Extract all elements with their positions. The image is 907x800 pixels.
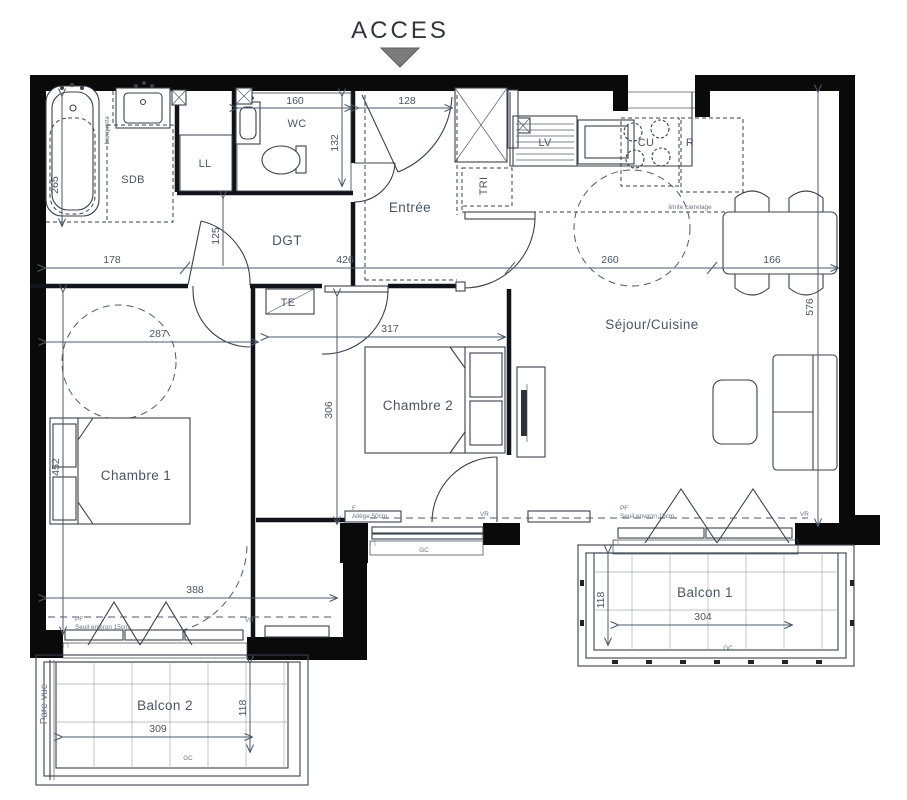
acces-title: ACCES xyxy=(351,17,449,44)
entree-dashed-zone xyxy=(365,95,457,280)
dim-265: 265 xyxy=(49,176,61,194)
room-label-sdb: SDB xyxy=(121,174,145,186)
room-label-sejour: Séjour/Cuisine xyxy=(605,317,698,332)
note-gc-balcon2: GC xyxy=(183,755,193,762)
bathtub xyxy=(46,83,99,216)
dim-452: 452 xyxy=(50,458,62,476)
note-pare-vue: Pare-vue xyxy=(39,683,50,724)
room-label-cu: CU xyxy=(638,137,655,149)
dim-260: 260 xyxy=(601,254,619,266)
room-label-chambre1: Chambre 1 xyxy=(101,468,171,483)
room-label-wc: WC xyxy=(288,118,307,130)
room-label-lv: LV xyxy=(538,137,552,149)
note-seuil-ch1: Seuil environ 15cm xyxy=(75,624,129,631)
room-label-chambre2: Chambre 2 xyxy=(383,398,453,413)
room-label-dgt: DGT xyxy=(272,233,302,248)
washbasin xyxy=(116,81,170,128)
note-banquette: banquette xyxy=(104,115,111,144)
toilet xyxy=(262,146,306,174)
note-vr-sejour: VR xyxy=(800,511,809,518)
dining-table xyxy=(723,191,837,295)
dim-125: 125 xyxy=(210,227,222,245)
note-pf-ch1: PF xyxy=(75,616,83,623)
room-label-ll: LL xyxy=(199,158,212,170)
dim-388: 388 xyxy=(186,584,204,596)
note-limite-carrelage: limite carrelage xyxy=(668,204,712,211)
note-gc-ch2: GC xyxy=(419,547,429,554)
balcon2 xyxy=(36,655,308,785)
acces-arrow-icon xyxy=(381,48,419,67)
note-allege-ch2: Allège 50cm xyxy=(352,513,387,520)
room-label-balcon2: Balcon 2 xyxy=(137,698,193,713)
dim-304: 304 xyxy=(694,611,712,623)
room-label-r: R xyxy=(686,137,694,149)
note-seuil-sejour: Seuil environ 15cm xyxy=(620,513,674,520)
entry-closet xyxy=(455,88,518,162)
room-label-entree: Entrée xyxy=(389,200,431,215)
cooktop xyxy=(621,118,679,186)
dim-178: 178 xyxy=(103,254,121,266)
kitchen-sink xyxy=(578,120,634,164)
room-label-te: TE xyxy=(281,297,296,309)
note-pf-sejour: PF xyxy=(620,505,628,512)
room-label-tri: TRI xyxy=(478,177,490,196)
coffee-table xyxy=(713,380,757,444)
dim-118-balcon1: 118 xyxy=(595,591,607,608)
fridge-zone xyxy=(681,118,743,192)
room-label-balcon1: Balcon 1 xyxy=(677,585,733,600)
dim-160: 160 xyxy=(286,95,304,107)
dim-306: 306 xyxy=(323,401,335,419)
dim-317: 317 xyxy=(381,323,399,335)
note-f-ch2: F xyxy=(352,505,356,512)
dim-576: 576 xyxy=(804,298,816,316)
note-gc-balcon1: GC xyxy=(723,645,733,652)
dim-128: 128 xyxy=(398,95,416,107)
floor-plan: ACCES xyxy=(0,0,907,800)
sofa xyxy=(773,355,837,470)
dim-287: 287 xyxy=(149,328,167,340)
tv-unit xyxy=(517,367,545,457)
dim-309: 309 xyxy=(149,723,167,735)
dim-132: 132 xyxy=(329,134,341,152)
balcon1 xyxy=(578,545,854,666)
dim-118-balcon2: 118 xyxy=(237,699,249,716)
dim-426: 426 xyxy=(336,254,354,266)
note-vr-ch1: VR xyxy=(245,617,254,624)
note-vr-ch2: VR xyxy=(480,511,489,518)
dim-166: 166 xyxy=(763,254,781,266)
